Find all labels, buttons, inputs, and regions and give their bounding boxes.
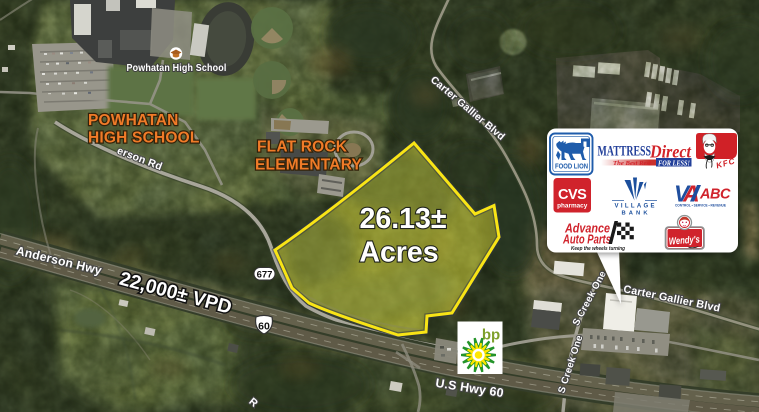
svg-text:Keep the wheels turning: Keep the wheels turning xyxy=(571,246,626,252)
svg-text:677: 677 xyxy=(257,270,273,281)
svg-text:The Best Rest: The Best Rest xyxy=(613,161,651,167)
svg-text:MATTRESS: MATTRESS xyxy=(598,144,652,160)
svg-text:Acres: Acres xyxy=(359,237,438,269)
svg-text:CVS: CVS xyxy=(558,187,587,203)
svg-text:FLAT ROCK: FLAT ROCK xyxy=(257,139,348,156)
svg-text:HIGH SCHOOL: HIGH SCHOOL xyxy=(88,130,200,147)
svg-text:FOR LESS!: FOR LESS! xyxy=(658,159,690,167)
svg-text:CONTROL • SERVICE • REVENUE: CONTROL • SERVICE • REVENUE xyxy=(675,203,726,208)
svg-text:Wendy's: Wendy's xyxy=(668,234,700,247)
svg-text:60: 60 xyxy=(258,321,270,333)
svg-text:26.13±: 26.13± xyxy=(360,203,447,235)
svg-text:bp: bp xyxy=(482,327,500,344)
svg-text:FOOD LION: FOOD LION xyxy=(555,162,588,171)
svg-text:POWHATAN: POWHATAN xyxy=(88,112,179,129)
svg-text:ABC: ABC xyxy=(699,187,731,203)
svg-text:Auto Parts: Auto Parts xyxy=(562,233,611,247)
svg-text:pharmacy: pharmacy xyxy=(557,203,588,210)
svg-text:Powhatan High School: Powhatan High School xyxy=(127,63,227,74)
svg-text:ELEMENTARY: ELEMENTARY xyxy=(255,157,363,174)
